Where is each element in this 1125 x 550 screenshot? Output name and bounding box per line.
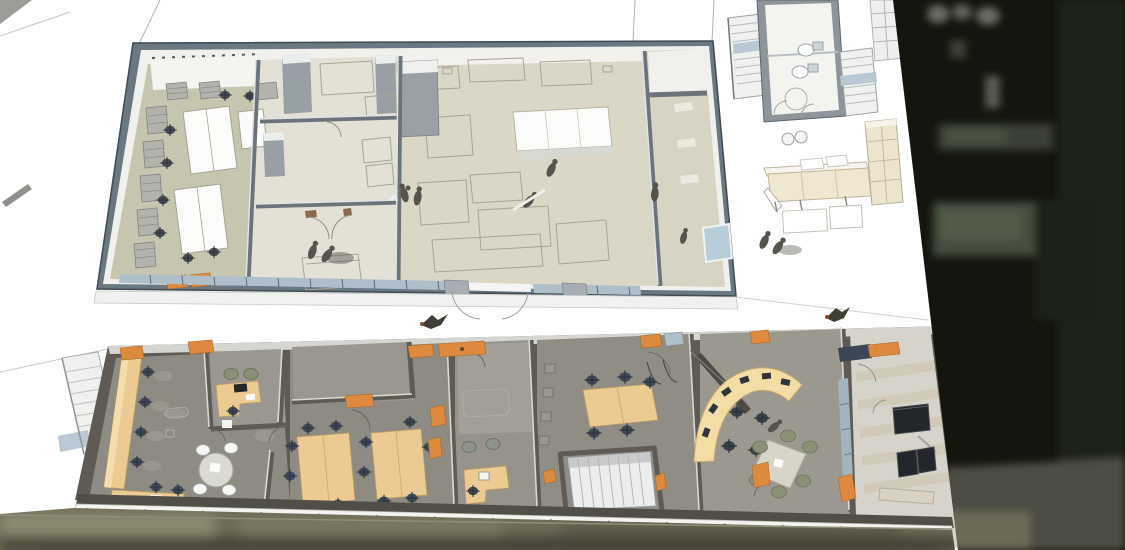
black-lounge-chair	[917, 447, 936, 473]
paper-sheet	[826, 155, 848, 167]
paper-sheet	[800, 158, 824, 170]
white-counter-island	[513, 107, 613, 160]
glass-door-header	[664, 332, 684, 346]
gray-cabinet	[397, 60, 439, 137]
blue-window	[703, 224, 732, 262]
upper-wing	[94, 41, 738, 319]
render-canvas	[0, 0, 1125, 550]
courtyard-stair-right	[840, 48, 878, 116]
monitor	[234, 383, 248, 392]
computer	[479, 472, 489, 480]
floorplan-render	[0, 0, 1125, 550]
black-credenza	[893, 404, 930, 434]
room-topright-floor	[648, 49, 708, 96]
black-lounge-chair	[897, 450, 918, 477]
small-office-top-floor	[457, 342, 532, 434]
restroom	[757, 0, 846, 122]
stair-hall	[568, 452, 656, 510]
stool	[795, 131, 807, 143]
printer-table	[222, 420, 232, 428]
stool	[782, 133, 794, 145]
